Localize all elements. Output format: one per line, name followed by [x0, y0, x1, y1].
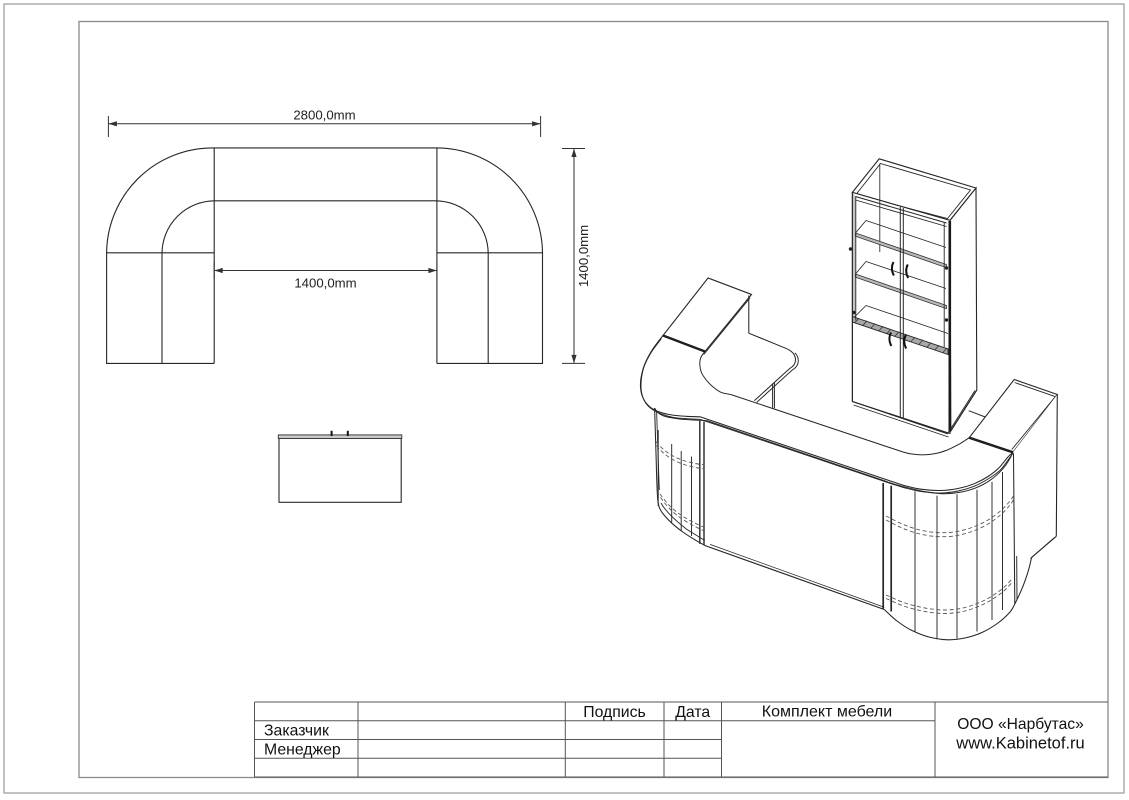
svg-text:1400,0mm: 1400,0mm [576, 225, 591, 287]
svg-text:www.Kabinetof.ru: www.Kabinetof.ru [955, 735, 1084, 753]
svg-text:2800,0mm: 2800,0mm [293, 108, 355, 123]
svg-text:Дата: Дата [675, 704, 710, 721]
svg-text:Подпись: Подпись [583, 704, 646, 721]
svg-text:Комплект мебели: Комплект мебели [762, 704, 892, 721]
svg-text:Менеджер: Менеджер [264, 742, 341, 759]
svg-text:Заказчик: Заказчик [264, 723, 329, 740]
svg-text:1400,0mm: 1400,0mm [294, 276, 356, 291]
svg-text:ООО «Нарбутас»: ООО «Нарбутас» [957, 716, 1084, 733]
